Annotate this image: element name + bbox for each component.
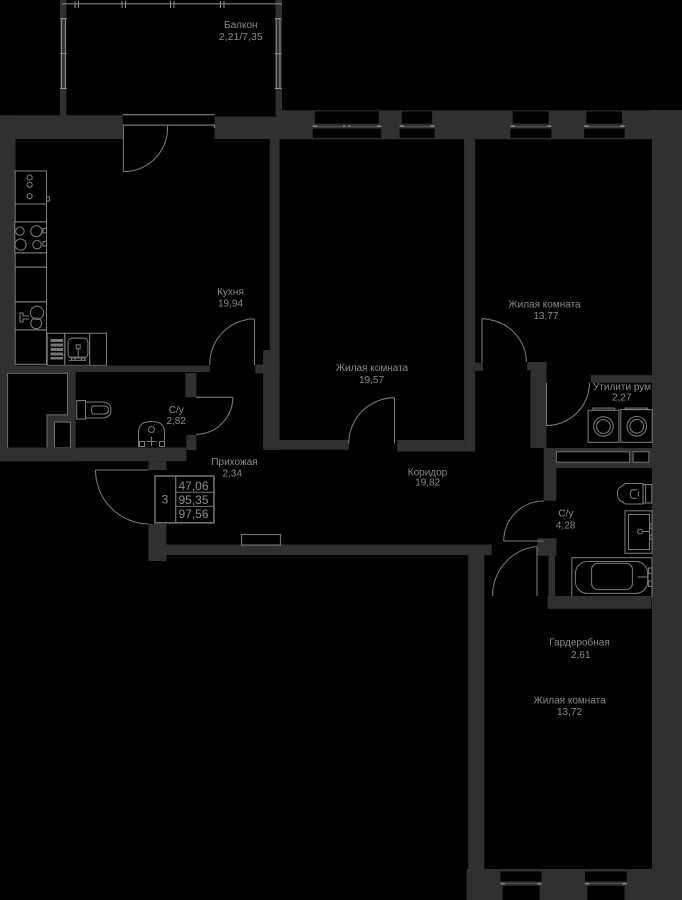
svg-text:2,82: 2,82: [166, 416, 186, 427]
svg-text:Прихожая: Прихожая: [211, 457, 257, 468]
svg-text:95,35: 95,35: [178, 493, 208, 507]
svg-text:2,21/7,35: 2,21/7,35: [219, 31, 263, 43]
svg-text:С/у: С/у: [169, 405, 184, 416]
svg-text:13,77: 13,77: [533, 311, 558, 322]
svg-text:Балкон: Балкон: [224, 20, 258, 31]
svg-text:Гардеробная: Гардеробная: [549, 637, 610, 649]
svg-text:Жилая комната: Жилая комната: [533, 696, 606, 707]
svg-text:Жилая комната: Жилая комната: [336, 363, 409, 374]
svg-text:2,61: 2,61: [571, 650, 591, 661]
svg-text:4,28: 4,28: [556, 521, 576, 532]
svg-text:2,34: 2,34: [222, 469, 242, 480]
svg-text:19,57: 19,57: [359, 375, 384, 386]
svg-text:19,94: 19,94: [218, 299, 243, 310]
svg-text:2,27: 2,27: [612, 393, 632, 404]
svg-text:С/у: С/у: [558, 509, 573, 520]
svg-text:97,56: 97,56: [178, 507, 208, 521]
svg-text:Кухня: Кухня: [217, 287, 244, 298]
svg-text:47,06: 47,06: [178, 479, 208, 493]
svg-text:13,72: 13,72: [557, 707, 582, 718]
svg-text:Утилити рум: Утилити рум: [593, 382, 651, 393]
svg-text:3: 3: [162, 493, 169, 507]
svg-text:19,82: 19,82: [415, 478, 440, 489]
svg-text:Жилая комната: Жилая комната: [508, 300, 581, 311]
